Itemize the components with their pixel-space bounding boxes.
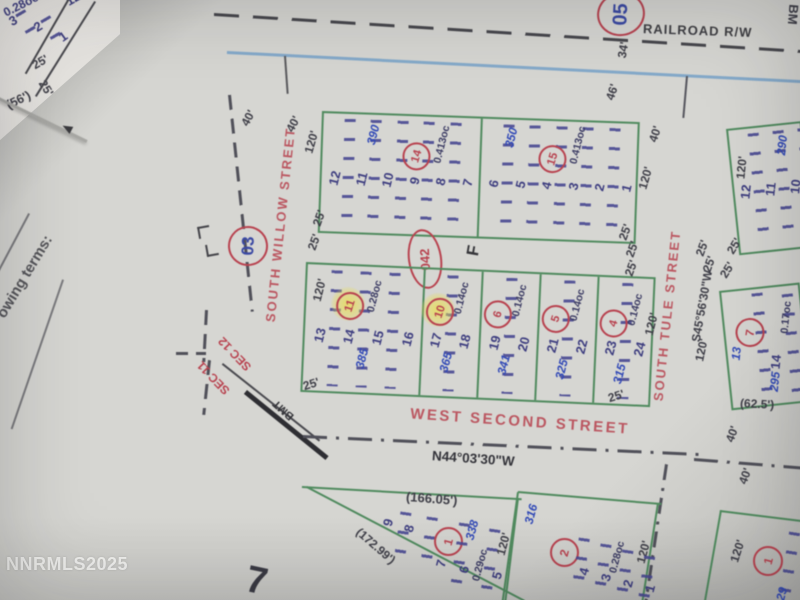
lot-number: 7	[432, 553, 449, 574]
railroad-label: RAILROAD R/W	[643, 22, 753, 39]
lot-number: 7	[459, 172, 476, 193]
willow-rw-dashed-stub	[176, 352, 206, 355]
address-number-partial: 29	[774, 586, 789, 600]
sec-12-label: SEC 12	[216, 335, 253, 373]
dim-tick: 25'	[623, 258, 640, 277]
block-divider	[592, 277, 600, 403]
lot-number: 11	[353, 169, 370, 190]
address-number: 316	[523, 503, 540, 525]
lot-number: 11	[763, 180, 778, 199]
dim-tick: 120'	[637, 165, 655, 190]
lot-number: 2	[591, 177, 608, 198]
plat-map-photo: owing terms: 7 0.28oc. 12 3 2 1 25' 25' …	[0, 0, 800, 600]
block-edge	[704, 510, 722, 600]
right-lower-block: 7 0.17oc 13 14 295	[719, 283, 800, 411]
lot-number: 4	[575, 561, 592, 582]
street-dim: 40'	[724, 424, 741, 443]
dim-tick: 25'	[306, 232, 323, 251]
block-dim: (62.5')	[740, 397, 775, 411]
willow-street-name: SOUTH WILLOW STREET	[264, 152, 295, 322]
block-divider	[534, 274, 542, 400]
lot-number: 13	[730, 346, 743, 361]
lot-number: 16	[399, 329, 416, 350]
row-stub-line	[284, 56, 289, 94]
lot-number: 5	[488, 565, 505, 586]
lot-number: 1	[641, 578, 658, 599]
lot-number: 1	[618, 178, 635, 199]
lot-number: 24	[631, 339, 648, 360]
block-divider	[418, 269, 426, 395]
lot-number: 2	[619, 573, 636, 594]
corner-block-border	[35, 1, 96, 97]
block-divider	[477, 119, 483, 237]
benchmark-label: BM	[786, 4, 800, 25]
lot-number: 14	[768, 352, 783, 371]
lot-number: 8	[432, 171, 449, 192]
dim-tick: 34'	[616, 41, 631, 59]
parcel-circle-05: 05	[593, 0, 649, 41]
lot-number: 18	[456, 331, 473, 352]
block-divider	[476, 272, 484, 398]
lot-number: 8	[400, 518, 417, 539]
lot-number: 19	[486, 332, 503, 353]
lot-number: 10	[379, 170, 396, 191]
corner-tick-mark	[197, 225, 211, 239]
parcel-circle-1b: 1	[753, 546, 783, 576]
bmt-thick-line	[244, 390, 329, 460]
block-dim: (166.05')	[406, 490, 458, 507]
lot-number: 23	[602, 338, 619, 359]
lot-number: 14	[340, 326, 357, 347]
dim-tick: 25'	[624, 239, 641, 258]
upper-block: 12 11 10 9 8 7 6 5 4 3 2 1 390 14 0.413o…	[318, 111, 640, 244]
lot-number: 10	[788, 177, 800, 196]
corner-tick-mark	[205, 243, 219, 257]
dim-tick: 25'	[718, 260, 737, 280]
street-dim: 40'	[737, 466, 754, 485]
address-number: 295	[768, 371, 782, 392]
watermark: NNRMLS2025	[6, 554, 128, 575]
lot-divider-dashed	[606, 128, 621, 236]
lot-number: 13	[311, 325, 328, 346]
lot-number: 22	[573, 336, 590, 357]
block-edge	[518, 491, 662, 505]
address-number: 350	[503, 126, 519, 148]
lot-number: 12	[326, 168, 343, 189]
row-stub-line	[682, 76, 688, 118]
street-circle-03: 03	[225, 223, 270, 268]
address-number: 290	[775, 135, 789, 156]
lot-number: 15	[369, 327, 386, 348]
right-upper-block: 12 11 10 290 120'	[726, 121, 800, 255]
block-dim: 120'	[728, 538, 746, 563]
address-number: 385	[354, 347, 371, 369]
lot-number: 12	[738, 182, 753, 201]
dim-tick: 40'	[239, 108, 257, 128]
lot-number: 21	[544, 335, 561, 356]
railroad-blue-line	[227, 51, 800, 83]
lot-number: 4	[538, 175, 555, 196]
lot-number: 17	[427, 330, 444, 351]
dim-tick: 120'	[693, 338, 709, 363]
lot-divider-dashed	[553, 126, 568, 234]
dim-tick: 120'	[303, 129, 321, 154]
block-edge	[720, 510, 800, 522]
dim-tick: 40'	[647, 124, 663, 143]
second-street-name: WEST SECOND STREET	[410, 406, 631, 436]
f-mark: F	[464, 244, 483, 257]
dim-tick: 46'	[604, 82, 620, 101]
page-corner-number: 7	[242, 560, 271, 600]
lot-number: 9	[379, 512, 396, 533]
lot-number: 20	[515, 334, 532, 355]
middle-block: 13 14 15 16 17 18 19 20 21 22 23 24 11 0…	[300, 262, 655, 407]
lot-divider-dashed	[385, 273, 401, 389]
block-dim: 120'	[734, 156, 748, 180]
second-street-bearing: N44°03'30"W	[432, 449, 515, 468]
lot-number: 6	[485, 173, 502, 194]
